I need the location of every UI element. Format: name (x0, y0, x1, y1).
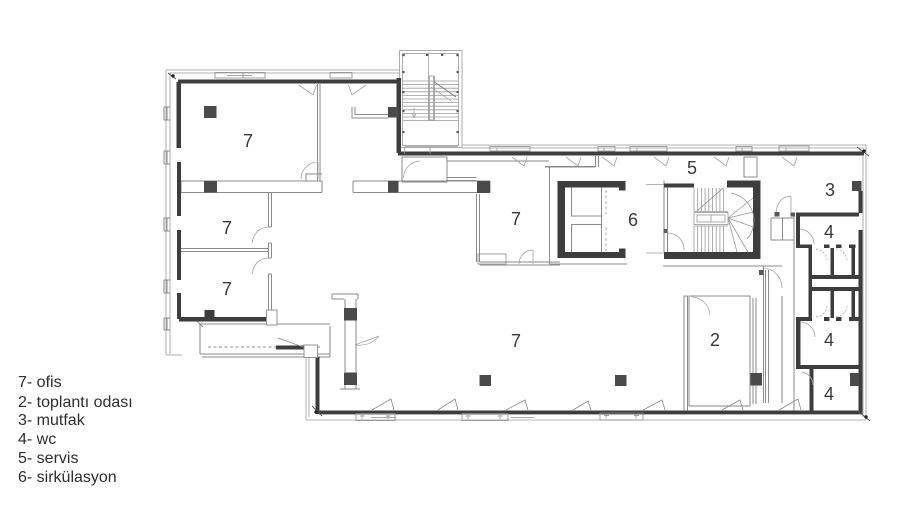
svg-text:7: 7 (243, 131, 253, 151)
svg-text:4: 4 (824, 330, 834, 350)
svg-text:7: 7 (511, 331, 521, 351)
svg-text:4: 4 (824, 384, 834, 404)
svg-text:6: 6 (628, 210, 638, 230)
svg-text:7: 7 (511, 209, 521, 229)
svg-text:3: 3 (825, 180, 835, 200)
svg-text:2- toplantı odası: 2- toplantı odası (18, 394, 133, 411)
svg-text:7: 7 (222, 218, 232, 238)
svg-text:2: 2 (710, 330, 720, 350)
svg-text:6- sirkülasyon: 6- sirkülasyon (18, 469, 117, 486)
svg-text:3- mutfak: 3- mutfak (18, 412, 86, 429)
svg-text:4: 4 (824, 222, 834, 242)
svg-text:7: 7 (222, 279, 232, 299)
svg-text:5: 5 (687, 158, 697, 178)
svg-text:7- ofis: 7- ofis (18, 374, 62, 391)
svg-text:5- servis: 5- servis (18, 450, 78, 467)
svg-text:4- wc: 4- wc (18, 431, 56, 448)
